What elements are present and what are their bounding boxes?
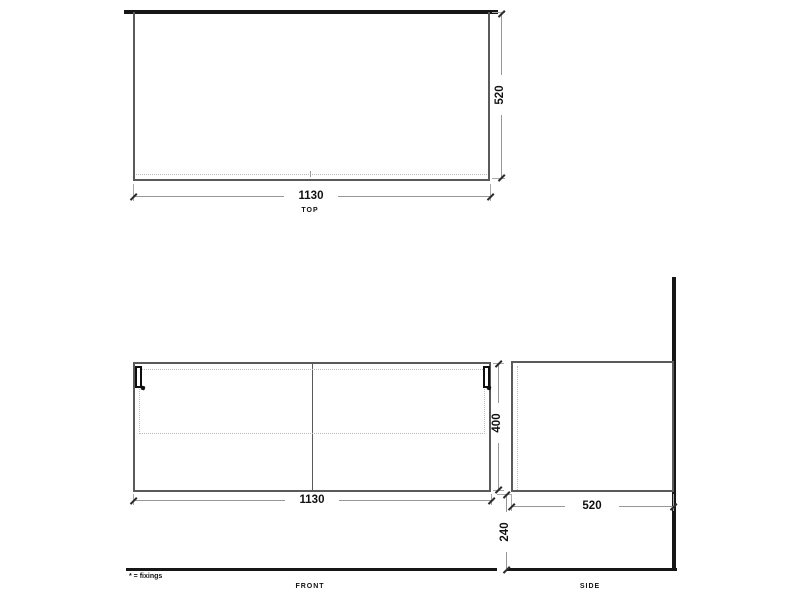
technical-drawing-canvas: 520 1130 TOP 400 113	[0, 0, 800, 600]
side-view: 520 240 SIDE	[0, 0, 800, 600]
side-hidden-line	[517, 366, 518, 490]
side-view-outline	[511, 361, 674, 492]
fixings-note: * = fixings	[129, 573, 162, 580]
side-depth-dim-value: 520	[565, 500, 619, 513]
floor-line-left	[126, 568, 497, 572]
side-view-label: SIDE	[550, 583, 630, 590]
floor-line-right	[506, 568, 677, 572]
side-clearance-dim-value: 240	[499, 512, 513, 552]
